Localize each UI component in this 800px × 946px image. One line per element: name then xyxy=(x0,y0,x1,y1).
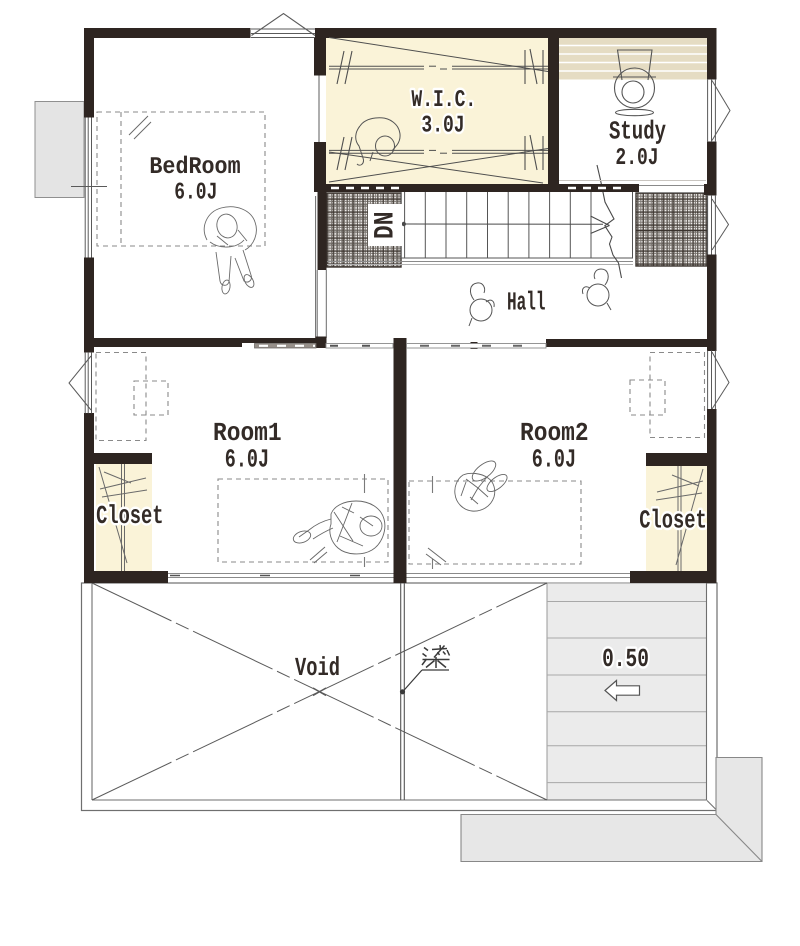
svg-text:W.I.C.: W.I.C. xyxy=(411,87,476,114)
svg-text:2.0J: 2.0J xyxy=(615,145,658,172)
svg-text:6.0J: 6.0J xyxy=(174,180,217,207)
svg-text:6.0J: 6.0J xyxy=(532,445,576,475)
svg-text:Void: Void xyxy=(295,653,340,683)
svg-text:Closet: Closet xyxy=(96,501,163,531)
svg-text:Hall: Hall xyxy=(507,288,546,318)
svg-text:3.0J: 3.0J xyxy=(421,113,464,140)
svg-text:6.0J: 6.0J xyxy=(225,445,269,475)
svg-text:0.50: 0.50 xyxy=(602,644,649,674)
svg-text:Closet: Closet xyxy=(639,506,706,536)
svg-text:Room1: Room1 xyxy=(213,418,282,448)
svg-text:Study: Study xyxy=(609,117,666,147)
svg-text:Room2: Room2 xyxy=(520,418,589,448)
svg-text:DN: DN xyxy=(371,212,402,239)
svg-text:BedRoom: BedRoom xyxy=(149,154,240,181)
